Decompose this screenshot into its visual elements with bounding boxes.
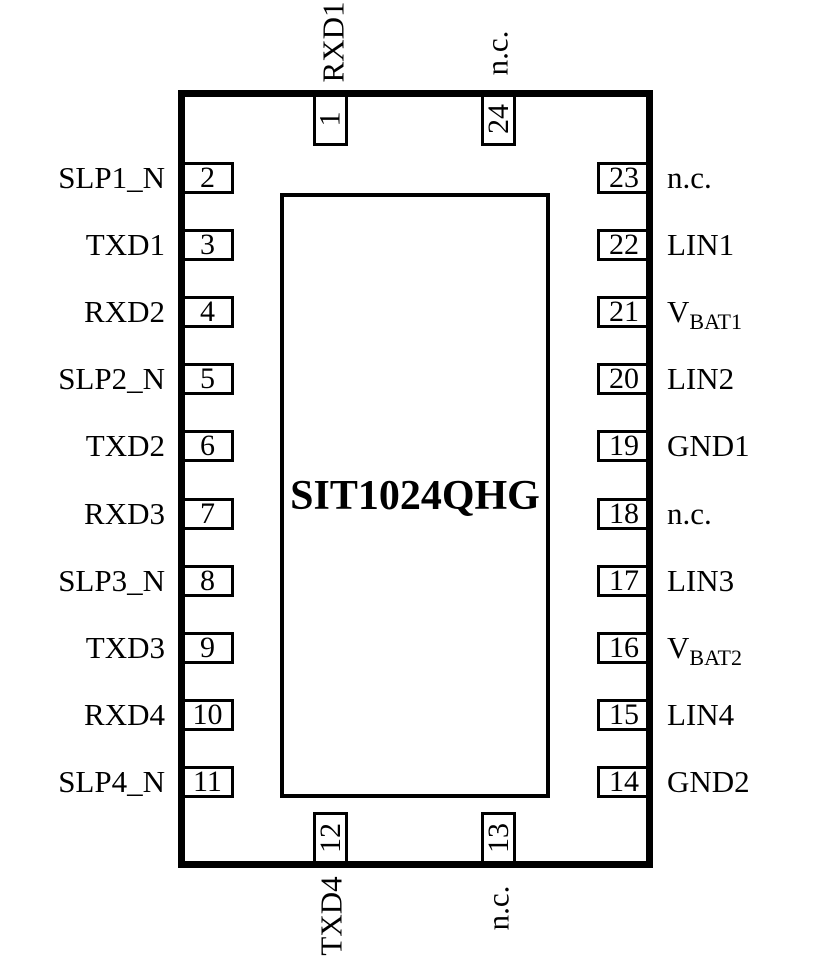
- pin-label: VBAT2: [667, 632, 742, 664]
- pin-row-right: 18 n.c.: [0, 498, 820, 530]
- pin-number: 18: [609, 499, 639, 529]
- pin-label-text: V: [667, 294, 689, 329]
- pin-label-text: GND1: [667, 428, 750, 463]
- pin-label-text: LIN1: [667, 227, 734, 262]
- pin-label-text: V: [667, 630, 689, 665]
- pin-label: n.c.: [482, 31, 513, 76]
- pin-number: 13: [484, 823, 514, 853]
- pin-number: 14: [609, 767, 639, 797]
- pin-number: 17: [609, 566, 639, 596]
- pin-label: LIN3: [667, 565, 734, 597]
- pin-number: 20: [609, 364, 639, 394]
- pin-number: 23: [609, 163, 639, 193]
- pin-label-text: n.c.: [667, 496, 712, 531]
- pin-row-right: 21 VBAT1: [0, 296, 820, 328]
- pin-label-text: n.c.: [667, 160, 712, 195]
- pin-box: 16: [597, 632, 651, 664]
- pin-label-subscript: BAT1: [689, 309, 742, 334]
- pin-box: 23: [597, 162, 651, 194]
- pin-number: 24: [484, 104, 514, 134]
- pin-row-right: 16 VBAT2: [0, 632, 820, 664]
- pin-box: 15: [597, 699, 651, 731]
- pin-label-text: LIN3: [667, 563, 734, 598]
- pin-label: TXD4: [316, 876, 347, 955]
- pin-box: 22: [597, 229, 651, 261]
- pin-box: 21: [597, 296, 651, 328]
- pin-number: 16: [609, 633, 639, 663]
- pin-number: 19: [609, 431, 639, 461]
- pin-label: VBAT1: [667, 296, 742, 328]
- pin-row-right: 15 LIN4: [0, 699, 820, 731]
- pin-row-right: 17 LIN3: [0, 565, 820, 597]
- pin-row-right: 22 LIN1: [0, 229, 820, 261]
- pin-box: 12: [313, 812, 348, 864]
- pin-label-text: GND2: [667, 764, 750, 799]
- pin-number: 21: [609, 297, 639, 327]
- pin-label-subscript: BAT2: [689, 645, 742, 670]
- pin-box: 24: [481, 92, 516, 146]
- pin-box: 18: [597, 498, 651, 530]
- pin-box: 19: [597, 430, 651, 462]
- pin-number: 15: [609, 700, 639, 730]
- pin-label: n.c.: [483, 886, 514, 931]
- pin-label: RXD1: [318, 2, 349, 83]
- pin-label: n.c.: [667, 162, 712, 194]
- pin-label: LIN2: [667, 363, 734, 395]
- pin-box: 17: [597, 565, 651, 597]
- pin-label-text: LIN4: [667, 697, 734, 732]
- pin-row-right: 23 n.c.: [0, 162, 820, 194]
- pin-number: 1: [316, 112, 346, 127]
- pin-row-right: 14 GND2: [0, 766, 820, 798]
- pin-label-text: LIN2: [667, 361, 734, 396]
- pin-label: LIN4: [667, 699, 734, 731]
- pin-row-right: 20 LIN2: [0, 363, 820, 395]
- pin-box: 13: [481, 812, 516, 864]
- pinout-diagram: SIT1024QHG SLP1_N 2 TXD1 3 RXD2 4 SLP2_N…: [0, 0, 820, 960]
- pin-number: 22: [609, 230, 639, 260]
- pin-label: GND2: [667, 766, 750, 798]
- pin-box: 1: [313, 92, 348, 146]
- pin-label: GND1: [667, 430, 750, 462]
- pin-number: 12: [316, 823, 346, 853]
- pin-label: n.c.: [667, 498, 712, 530]
- pin-box: 20: [597, 363, 651, 395]
- pin-row-right: 19 GND1: [0, 430, 820, 462]
- pin-box: 14: [597, 766, 651, 798]
- pin-label: LIN1: [667, 229, 734, 261]
